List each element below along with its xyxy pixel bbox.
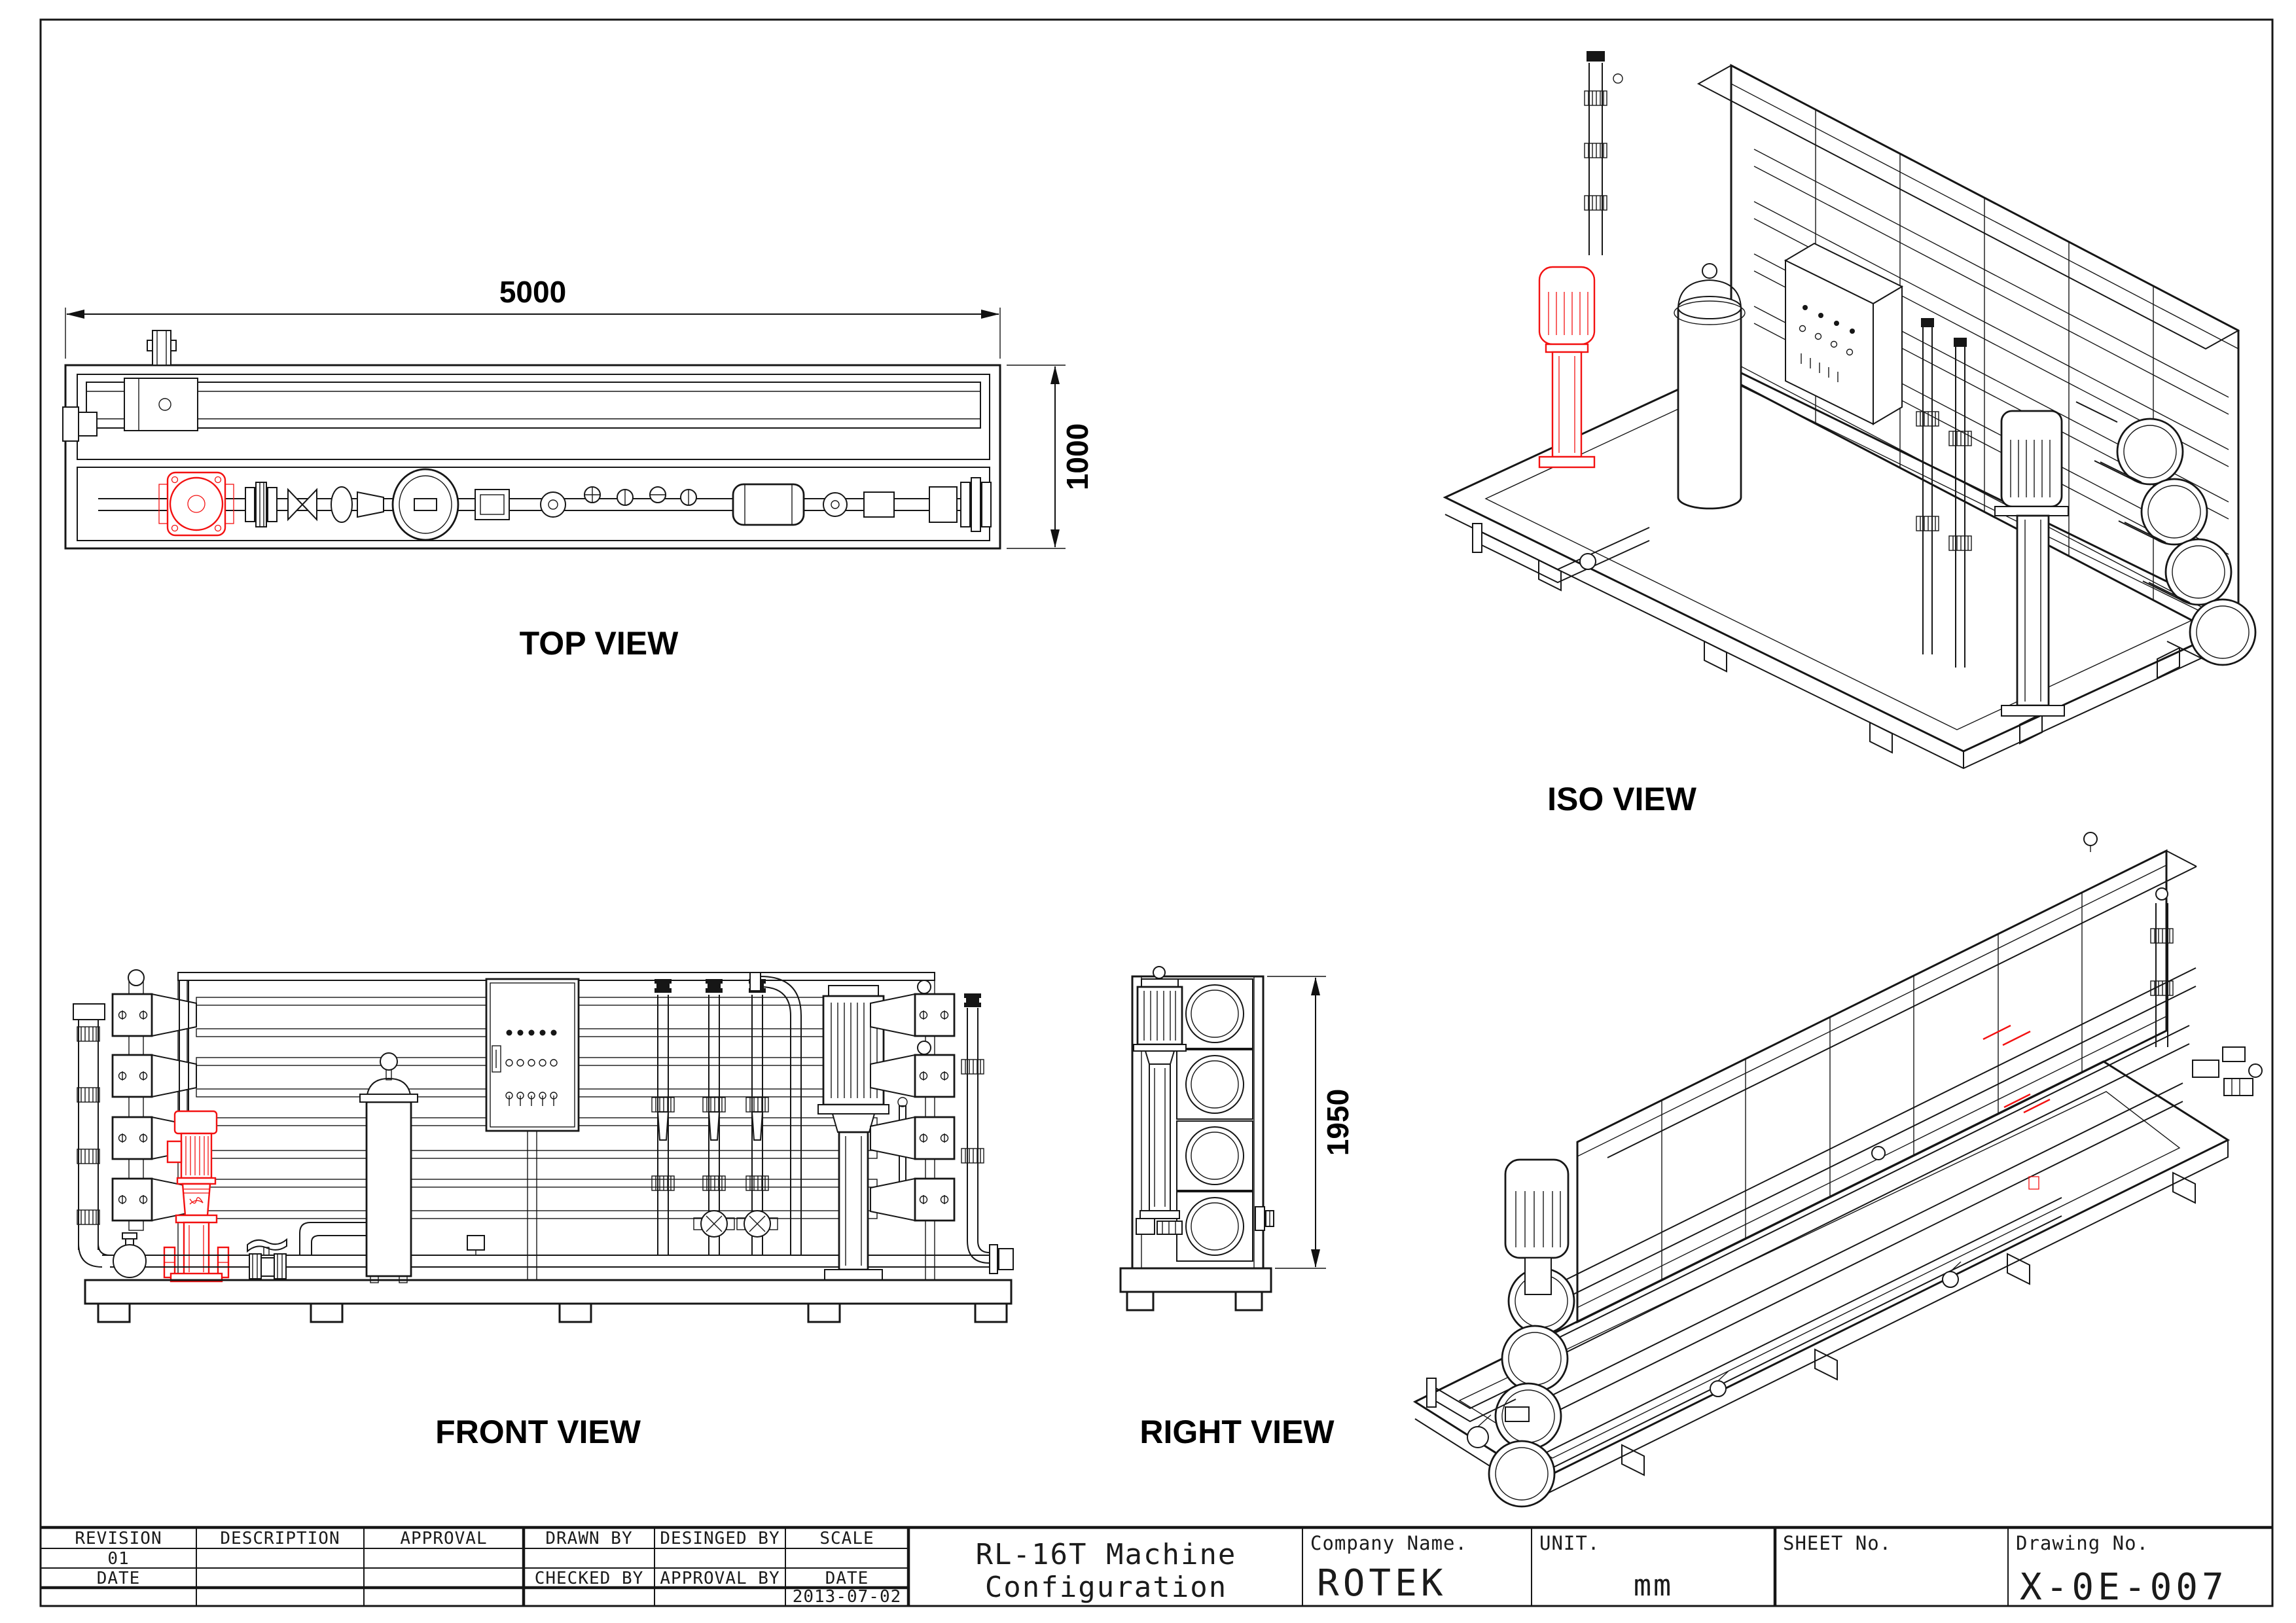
company-name-value: ROTEK bbox=[1317, 1562, 1447, 1605]
date-value: 2013-07-02 bbox=[793, 1587, 902, 1607]
iso-control-panel bbox=[1785, 243, 1902, 424]
front-view-butterfly-valve bbox=[247, 1240, 287, 1279]
unit-label: UNIT. bbox=[1539, 1532, 1600, 1554]
designed-by-header: DESINGED BY bbox=[660, 1529, 780, 1548]
date-label: DATE bbox=[825, 1569, 869, 1588]
top-view-label: TOP VIEW bbox=[520, 625, 679, 662]
description-header: DESCRIPTION bbox=[220, 1529, 340, 1548]
iso-view-label: ISO VIEW bbox=[1547, 781, 1697, 817]
front-view-dosing-pipes bbox=[652, 979, 778, 1255]
sheet-border bbox=[41, 20, 2272, 1606]
checked-by-label: CHECKED BY bbox=[535, 1569, 644, 1588]
front-view-base bbox=[85, 1280, 1011, 1304]
sheet-no-label: SHEET No. bbox=[1783, 1532, 1892, 1554]
drawing-title-line1: RL-16T Machine bbox=[976, 1538, 1237, 1571]
iso-red-pump bbox=[1539, 267, 1594, 467]
drawing-no-value: X-0E-007 bbox=[2020, 1566, 2228, 1609]
rear-iso-red-details bbox=[1983, 1026, 2050, 1189]
approval-by-label: APPROVAL BY bbox=[660, 1569, 780, 1588]
top-view-red-pump bbox=[159, 473, 234, 535]
cad-canvas: 5000 1000 bbox=[0, 0, 2296, 1623]
iso-vessel-cylinders bbox=[2076, 402, 2255, 665]
rear-iso-view bbox=[1415, 832, 2262, 1507]
revision-date-label: DATE bbox=[97, 1569, 141, 1588]
unit-value: mm bbox=[1634, 1568, 1673, 1603]
front-view-feed-pipe bbox=[73, 1004, 110, 1267]
front-view-control-panel bbox=[486, 979, 579, 1131]
drawing-no-label: Drawing No. bbox=[2016, 1532, 2149, 1554]
top-view-valve-cluster bbox=[584, 487, 696, 505]
scale-header: SCALE bbox=[819, 1529, 874, 1548]
right-view: 1950 RIGHT VIEW bbox=[1121, 967, 1355, 1450]
iso-view: ISO VIEW bbox=[1445, 51, 2255, 817]
company-name-label: Company Name. bbox=[1310, 1532, 1467, 1554]
iso-filter bbox=[1674, 264, 1745, 508]
top-view: 5000 1000 bbox=[63, 275, 1094, 662]
right-view-label: RIGHT VIEW bbox=[1139, 1414, 1335, 1450]
top-depth-dim-label: 1000 bbox=[1060, 423, 1094, 490]
iso-hp-pump bbox=[1995, 411, 2068, 716]
revision-number: 01 bbox=[107, 1549, 129, 1569]
top-width-dim-label: 5000 bbox=[499, 275, 566, 309]
front-view-label: FRONT VIEW bbox=[435, 1414, 641, 1450]
approval-header: APPROVAL bbox=[400, 1529, 487, 1548]
drawn-by-header: DRAWN BY bbox=[545, 1529, 632, 1548]
drawing-title-line2: Configuration bbox=[985, 1571, 1227, 1604]
rear-iso-vessels bbox=[1489, 968, 2196, 1507]
front-view-right-pipe bbox=[961, 993, 1013, 1274]
right-height-dim-label: 1950 bbox=[1321, 1089, 1355, 1156]
right-view-vessel-ends bbox=[1177, 979, 1253, 1261]
revision-header: REVISION bbox=[75, 1529, 162, 1548]
top-view-filter bbox=[393, 469, 458, 540]
front-view: FRONT VIEW bbox=[73, 970, 1013, 1450]
rear-iso-right-pipe bbox=[2151, 888, 2262, 1096]
front-view-filter bbox=[360, 1053, 418, 1283]
title-block: REVISION DESCRIPTION APPROVAL DRAWN BY D… bbox=[41, 1527, 2272, 1609]
drawing-sheet: 5000 1000 bbox=[0, 0, 2296, 1623]
iso-feed-pipe bbox=[1585, 51, 1623, 255]
